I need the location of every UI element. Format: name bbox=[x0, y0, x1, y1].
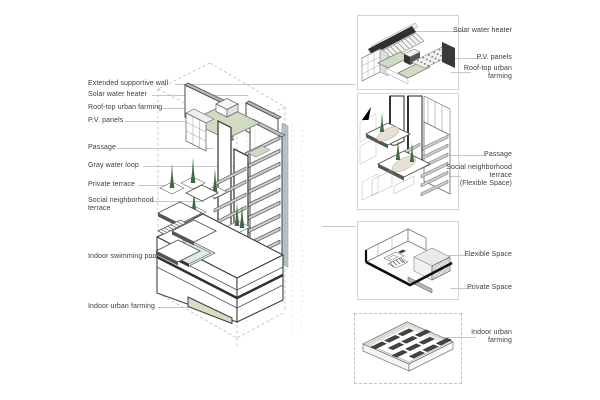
label-detail-flexible-space: Flexible Space bbox=[465, 251, 512, 259]
label-detail-pv-panels: P.V. panels bbox=[477, 54, 512, 62]
label-detail-indoor-urban-farming: Indoor urban farming bbox=[471, 329, 512, 345]
detail-view-roof-systems bbox=[357, 15, 459, 90]
label-solar-water-heater: Solar water heater bbox=[88, 91, 147, 99]
label-indoor-urban-farming: Indoor urban farming bbox=[88, 303, 155, 311]
detail-view-terrace-passage bbox=[357, 93, 459, 210]
label-extended-supportive-wall: Extended supportive wall bbox=[88, 80, 168, 88]
gray-water-loop-band bbox=[282, 123, 288, 267]
detail-view-indoor-farming bbox=[354, 313, 462, 384]
label-pv-panels: P.V. panels bbox=[88, 117, 123, 125]
label-detail-private-space: Private Space bbox=[467, 284, 512, 292]
label-detail-passage: Passage bbox=[484, 151, 512, 159]
label-detail-solar-water-heater: Solar water heater bbox=[453, 27, 512, 35]
indoor-farming-drawing bbox=[355, 314, 461, 383]
label-passage: Passage bbox=[88, 144, 116, 152]
north-arrow-icon bbox=[362, 107, 371, 120]
label-gray-water-loop: Gray water loop bbox=[88, 162, 139, 170]
label-rooftop-urban-farming: Roof-top urban farming bbox=[88, 104, 162, 112]
unit-interior-drawing bbox=[358, 222, 458, 299]
detail-view-unit-interior bbox=[357, 221, 459, 300]
label-detail-social-neighborhood-terrace: Social neighborhood terrace (Flexible Sp… bbox=[446, 164, 512, 188]
terrace-passage-drawing bbox=[358, 94, 458, 209]
architecture-diagram-page: Extended supportive wall Solar water hea… bbox=[0, 0, 600, 400]
label-indoor-swimming-pool: Indoor swimming pool bbox=[88, 253, 158, 261]
roof-systems-drawing bbox=[358, 16, 458, 89]
label-social-neighborhood-terrace: Social neighborhood terrace bbox=[88, 197, 154, 213]
main-axonometric-drawing bbox=[128, 55, 348, 360]
label-private-terrace: Private terrace bbox=[88, 181, 135, 189]
label-detail-rooftop-urban-farming: Roof-top urban farming bbox=[464, 65, 512, 81]
